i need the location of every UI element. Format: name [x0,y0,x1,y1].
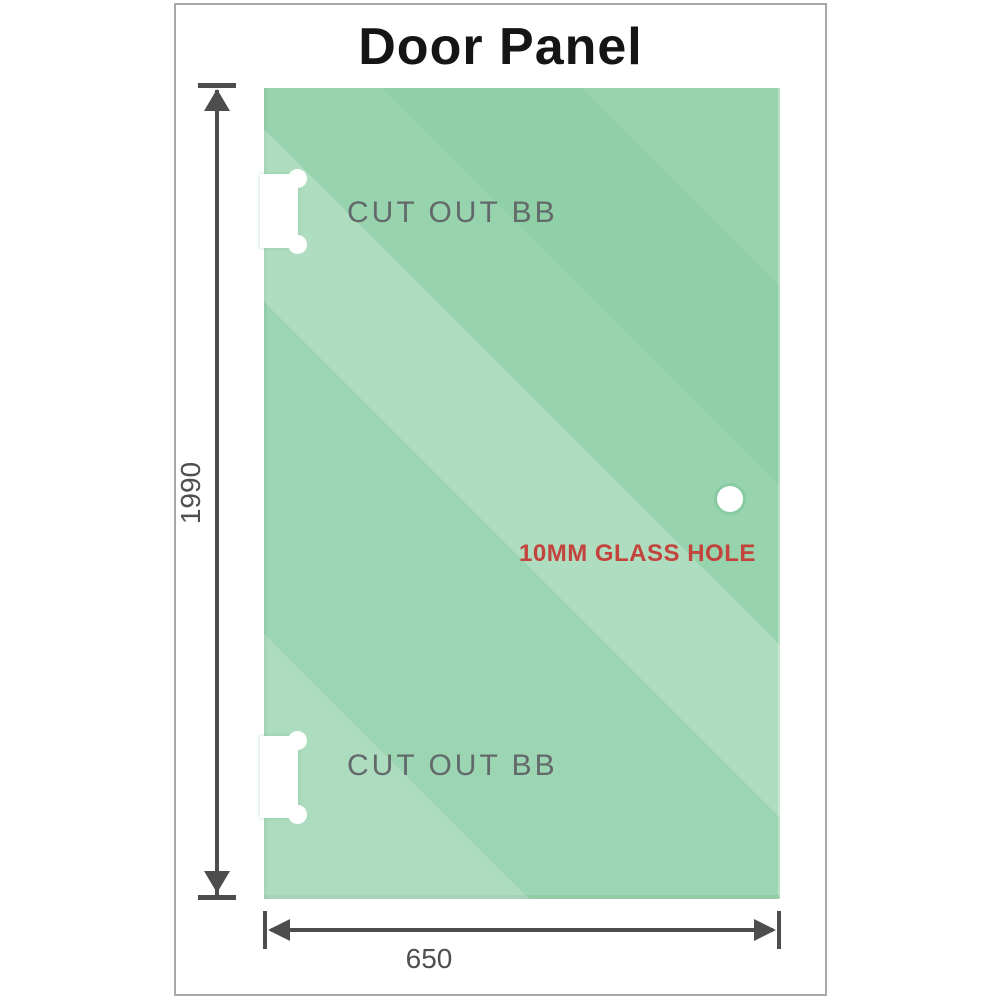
glass-hole-label: 10MM GLASS HOLE [519,540,756,568]
height-dim-bottom-cap [198,895,236,900]
page: { "title": "Door Panel", "labels": { "cu… [0,0,1000,1000]
arrow-down-icon [204,871,230,893]
height-dim-top-cap [198,83,236,88]
width-dimension-label: 650 [369,943,489,975]
glass-panel: CUT OUT BB CUT OUT BB 10MM GLASS HOLE [264,88,780,899]
cutout-label-bottom: CUT OUT BB [347,749,558,783]
drawing-frame: Door Panel CUT OUT BB CUT OUT BB 10MM GL… [174,3,827,996]
cutout-label-top: CUT OUT BB [347,196,558,230]
cutout-relief-circle [288,805,307,824]
cutout-relief-circle [288,235,307,254]
height-dimension-line [215,90,219,895]
glass-hole [717,486,743,512]
width-dimension-line [271,928,773,932]
arrow-right-icon [754,919,776,941]
cutout-relief-circle [288,169,307,188]
width-dim-right-cap [777,911,781,949]
cutout-relief-circle [288,731,307,750]
arrow-left-icon [268,919,290,941]
page-title: Door Panel [176,17,825,77]
arrow-up-icon [204,89,230,111]
width-dim-left-cap [263,911,267,949]
height-dimension-label: 1990 [175,433,207,553]
